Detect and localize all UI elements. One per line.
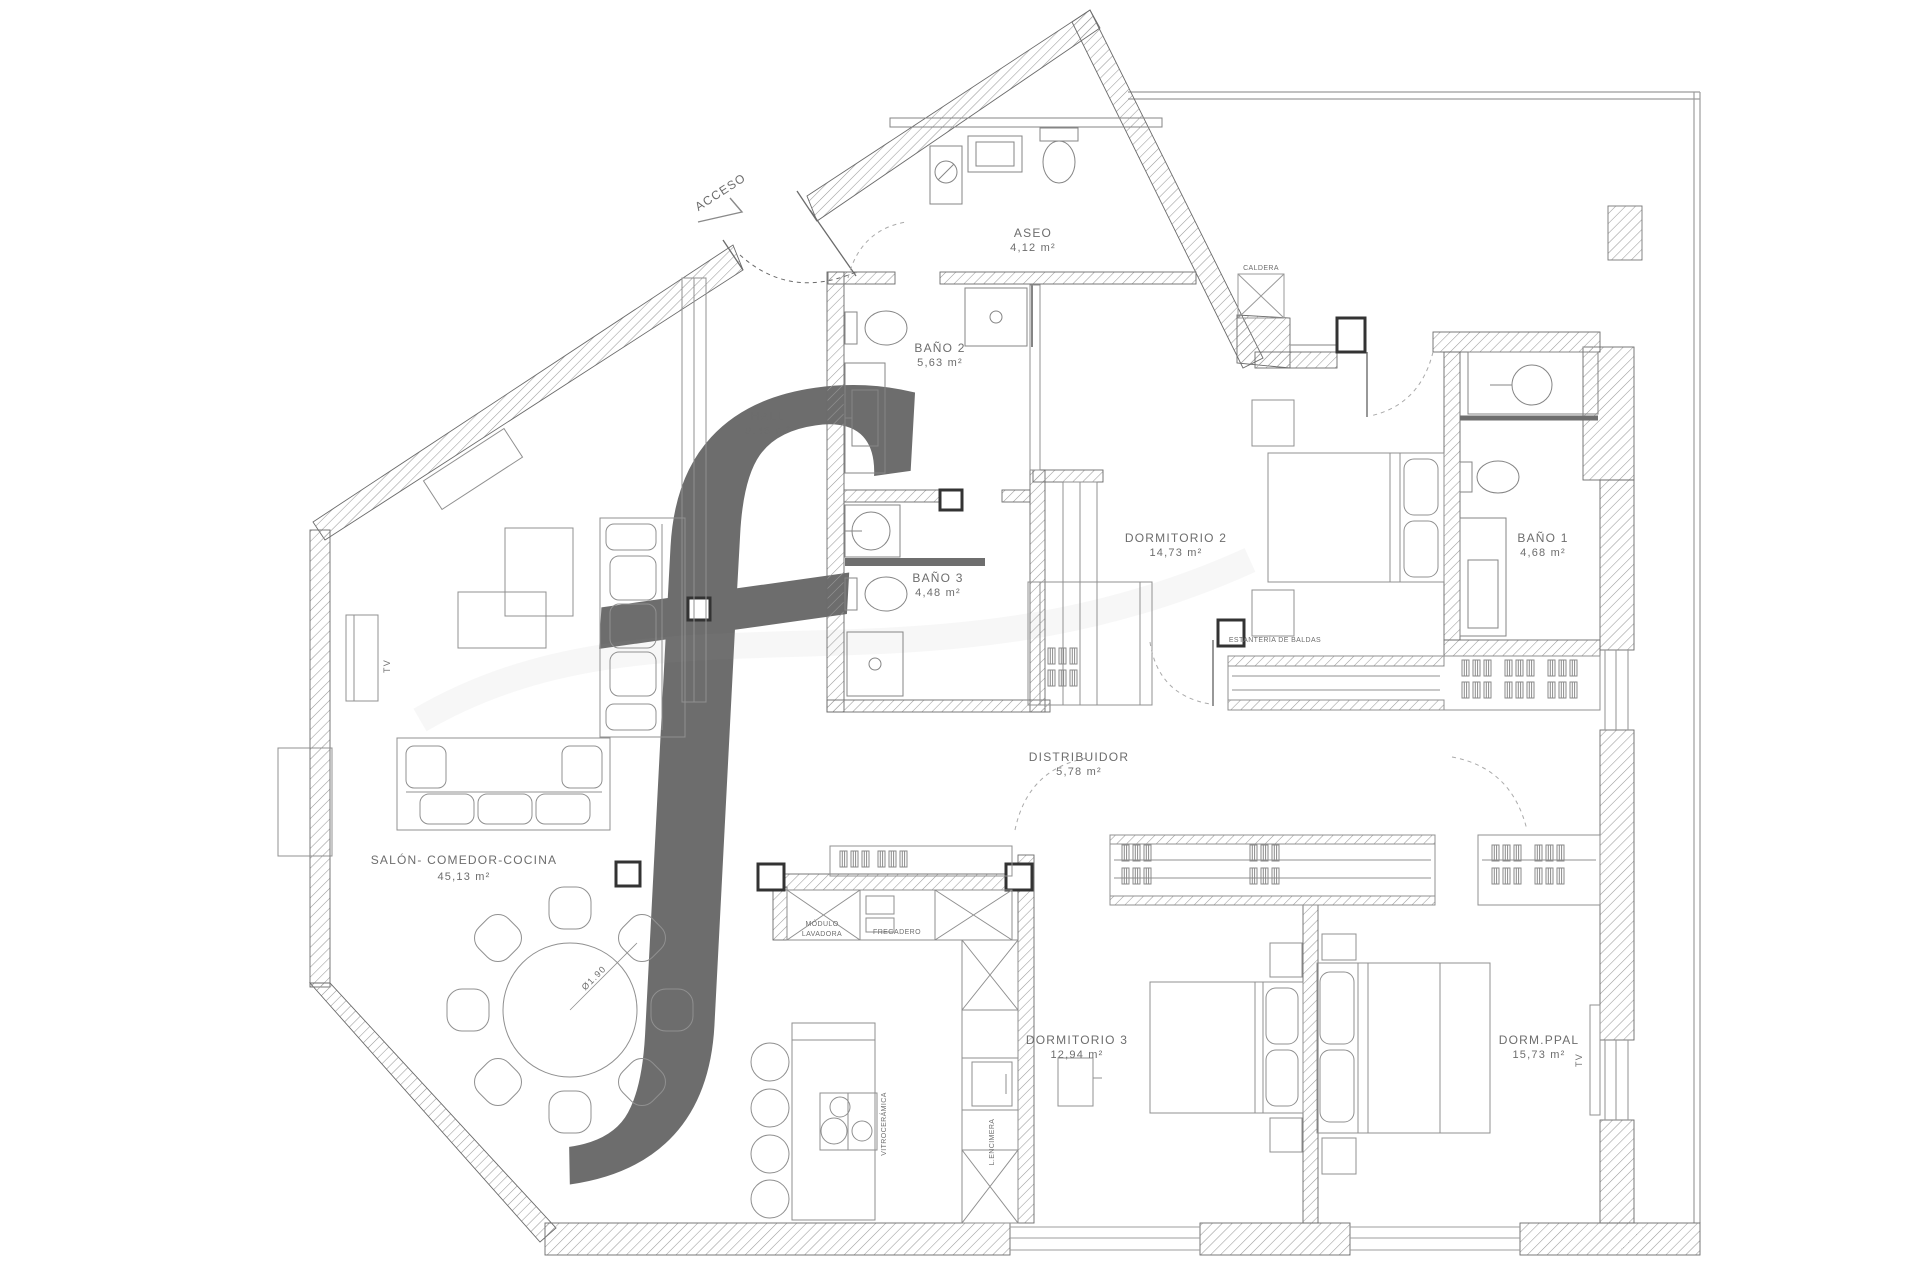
wall-south-1	[545, 1223, 1010, 1255]
bano2-fixtures	[845, 285, 1032, 473]
bano1-fixtures	[1460, 352, 1598, 636]
stool	[751, 1180, 789, 1218]
pier	[1337, 318, 1365, 352]
chair	[468, 908, 527, 967]
tv-label-salon: TV	[382, 659, 392, 673]
window-east-1	[1605, 650, 1628, 730]
dorm3-furniture	[1058, 943, 1303, 1152]
wall-east-2	[1600, 730, 1634, 1040]
dormppal-area: 15,73 m²	[1512, 1049, 1565, 1061]
dorm3-label: DORMITORIO 3	[1026, 1033, 1128, 1047]
wall-bano3-partition	[845, 558, 985, 566]
encimera-label: L.ENCIMERA	[989, 1119, 996, 1166]
terrace-pillar	[1608, 206, 1642, 260]
salon-area: 45,13 m²	[437, 871, 490, 883]
bano3-label: BAÑO 3	[912, 571, 963, 585]
bano1-label: BAÑO 1	[1517, 531, 1568, 545]
wall-bano1-bottom	[1444, 640, 1600, 656]
hall-area: 9,45 m²	[745, 425, 791, 437]
dormppal-tv-console	[1590, 1005, 1600, 1115]
caldera-label: CALDERA	[1243, 265, 1279, 272]
dorm2-label: DORMITORIO 2	[1125, 531, 1227, 545]
interior-walls	[773, 272, 1600, 1223]
wall-bedroom-divider	[1303, 905, 1318, 1223]
lower-closet-row	[830, 835, 1600, 905]
bano3-fixtures	[845, 505, 907, 696]
bano1-toilet-tank	[1460, 462, 1472, 492]
tv-label-dormppal: TV	[1574, 1053, 1584, 1067]
bano1-toilet-bowl	[1477, 461, 1519, 493]
floor-plan-drawing: f	[0, 0, 1920, 1280]
wall-bath-block-left	[827, 272, 844, 712]
wall-bano1-left	[1444, 352, 1460, 640]
corridor-wardrobe	[1063, 482, 1097, 705]
pier	[940, 490, 962, 510]
window-east-2	[1605, 1040, 1628, 1120]
pier	[758, 864, 784, 890]
dormppal-label: DORM.PPAL	[1499, 1033, 1580, 1047]
dorm2-bed	[1268, 453, 1444, 582]
vitroceramica-label: VITROCERÁMICA	[879, 1092, 888, 1156]
bano3-toilet-tank	[845, 578, 857, 610]
dorm2-nightstand	[1252, 400, 1294, 446]
aseo-area: 4,12 m²	[1010, 242, 1056, 254]
bano3-area: 4,48 m²	[915, 587, 961, 599]
estanteria-label: ESTANTERÍA DE BALDAS	[1229, 635, 1321, 644]
wall-west	[310, 530, 330, 987]
aseo-door-arc	[848, 222, 906, 278]
dorm3-nightstand	[1270, 943, 1302, 977]
dorm3-dresser	[1058, 1058, 1093, 1106]
modulo-label-1: MÓDULO	[805, 919, 838, 928]
distribuidor-label: DISTRIBUIDOR	[1029, 750, 1129, 764]
wall-south-2	[1200, 1223, 1350, 1255]
dorm2-pillow	[1404, 521, 1438, 577]
salon-label: SALÓN- COMEDOR-COCINA	[371, 852, 558, 867]
dormppal-nightstand	[1322, 934, 1356, 960]
distribuidor-area: 5,78 m²	[1056, 766, 1102, 778]
pier	[688, 598, 710, 620]
wall-kitchen-left	[773, 887, 787, 940]
bano1-area: 4,68 m²	[1520, 547, 1566, 559]
washing-machine	[930, 146, 962, 204]
wall-bath-block-bottom	[827, 700, 1050, 712]
bano1-sink	[1512, 365, 1552, 405]
wall-dorm2-top	[1255, 352, 1337, 368]
dorm3-bed	[1150, 982, 1303, 1113]
wall-east-3	[1600, 1120, 1634, 1223]
wall-east-1	[1600, 480, 1634, 650]
pier	[616, 862, 640, 886]
dormppal-pillow	[1320, 972, 1354, 1044]
chair	[468, 1052, 527, 1111]
wall-aseo-bottom-2	[940, 272, 1196, 284]
dorm3-area: 12,94 m²	[1050, 1049, 1103, 1061]
pier	[1006, 864, 1032, 890]
bano2-toilet-tank	[845, 312, 857, 344]
wall-bano2-divider-1	[844, 490, 942, 502]
wall-bano2-divider-2	[1002, 490, 1030, 502]
tv-console	[346, 615, 378, 701]
wall-nw-upper	[807, 10, 1100, 221]
caldera-unit	[1238, 274, 1284, 318]
dorm2-pillow	[1404, 459, 1438, 515]
aseo-toilet-bowl	[1043, 141, 1075, 183]
wall-south-3	[1520, 1223, 1700, 1255]
dorm2-area: 14,73 m²	[1149, 547, 1202, 559]
chair	[447, 989, 489, 1031]
dormppal-nightstand	[1322, 1138, 1356, 1174]
dorm2-door-arc	[1370, 352, 1433, 416]
wall-sw-diagonal	[310, 983, 556, 1242]
wall-bath-block-right	[1030, 470, 1045, 712]
window-south-1	[1010, 1227, 1200, 1250]
hall-label: HALL	[751, 409, 786, 423]
bano1-shower	[1460, 518, 1506, 636]
bano2-label: BAÑO 2	[914, 341, 965, 355]
side-table	[458, 592, 546, 648]
wall-ne-diagonal	[1072, 10, 1263, 368]
aseo-label: ASEO	[1014, 226, 1052, 240]
floor-plan-page: f	[0, 0, 1920, 1280]
wall-bano1-top	[1433, 332, 1600, 352]
dormppal-pillow	[1320, 1050, 1354, 1122]
dorm3-pillow	[1266, 1050, 1298, 1106]
dorm3-pillow	[1266, 988, 1298, 1044]
bano2-toilet-bowl	[865, 311, 907, 345]
bano2-shower	[965, 288, 1027, 346]
dormppal-door-arc	[1452, 757, 1527, 830]
window-south-2	[1350, 1227, 1520, 1250]
bano3-toilet-bowl	[865, 577, 907, 611]
chair	[549, 1091, 591, 1133]
acceso-label: ACCESO	[692, 171, 748, 214]
aseo-toilet-tank	[1040, 128, 1078, 141]
dorm2-closet	[1228, 656, 1600, 710]
bano2-area: 5,63 m²	[917, 357, 963, 369]
windows	[1010, 650, 1628, 1250]
wall-bath-block-cap	[1033, 470, 1103, 482]
dorm3-nightstand	[1270, 1118, 1302, 1152]
fregadero-label: FREGADERO	[873, 929, 921, 936]
modulo-label-2: LAVADORA	[802, 931, 842, 938]
distribuidor-dorm2-door-arc	[1150, 642, 1210, 704]
dormppal-bed	[1317, 963, 1490, 1133]
dorm2-nightstand	[1252, 590, 1294, 636]
